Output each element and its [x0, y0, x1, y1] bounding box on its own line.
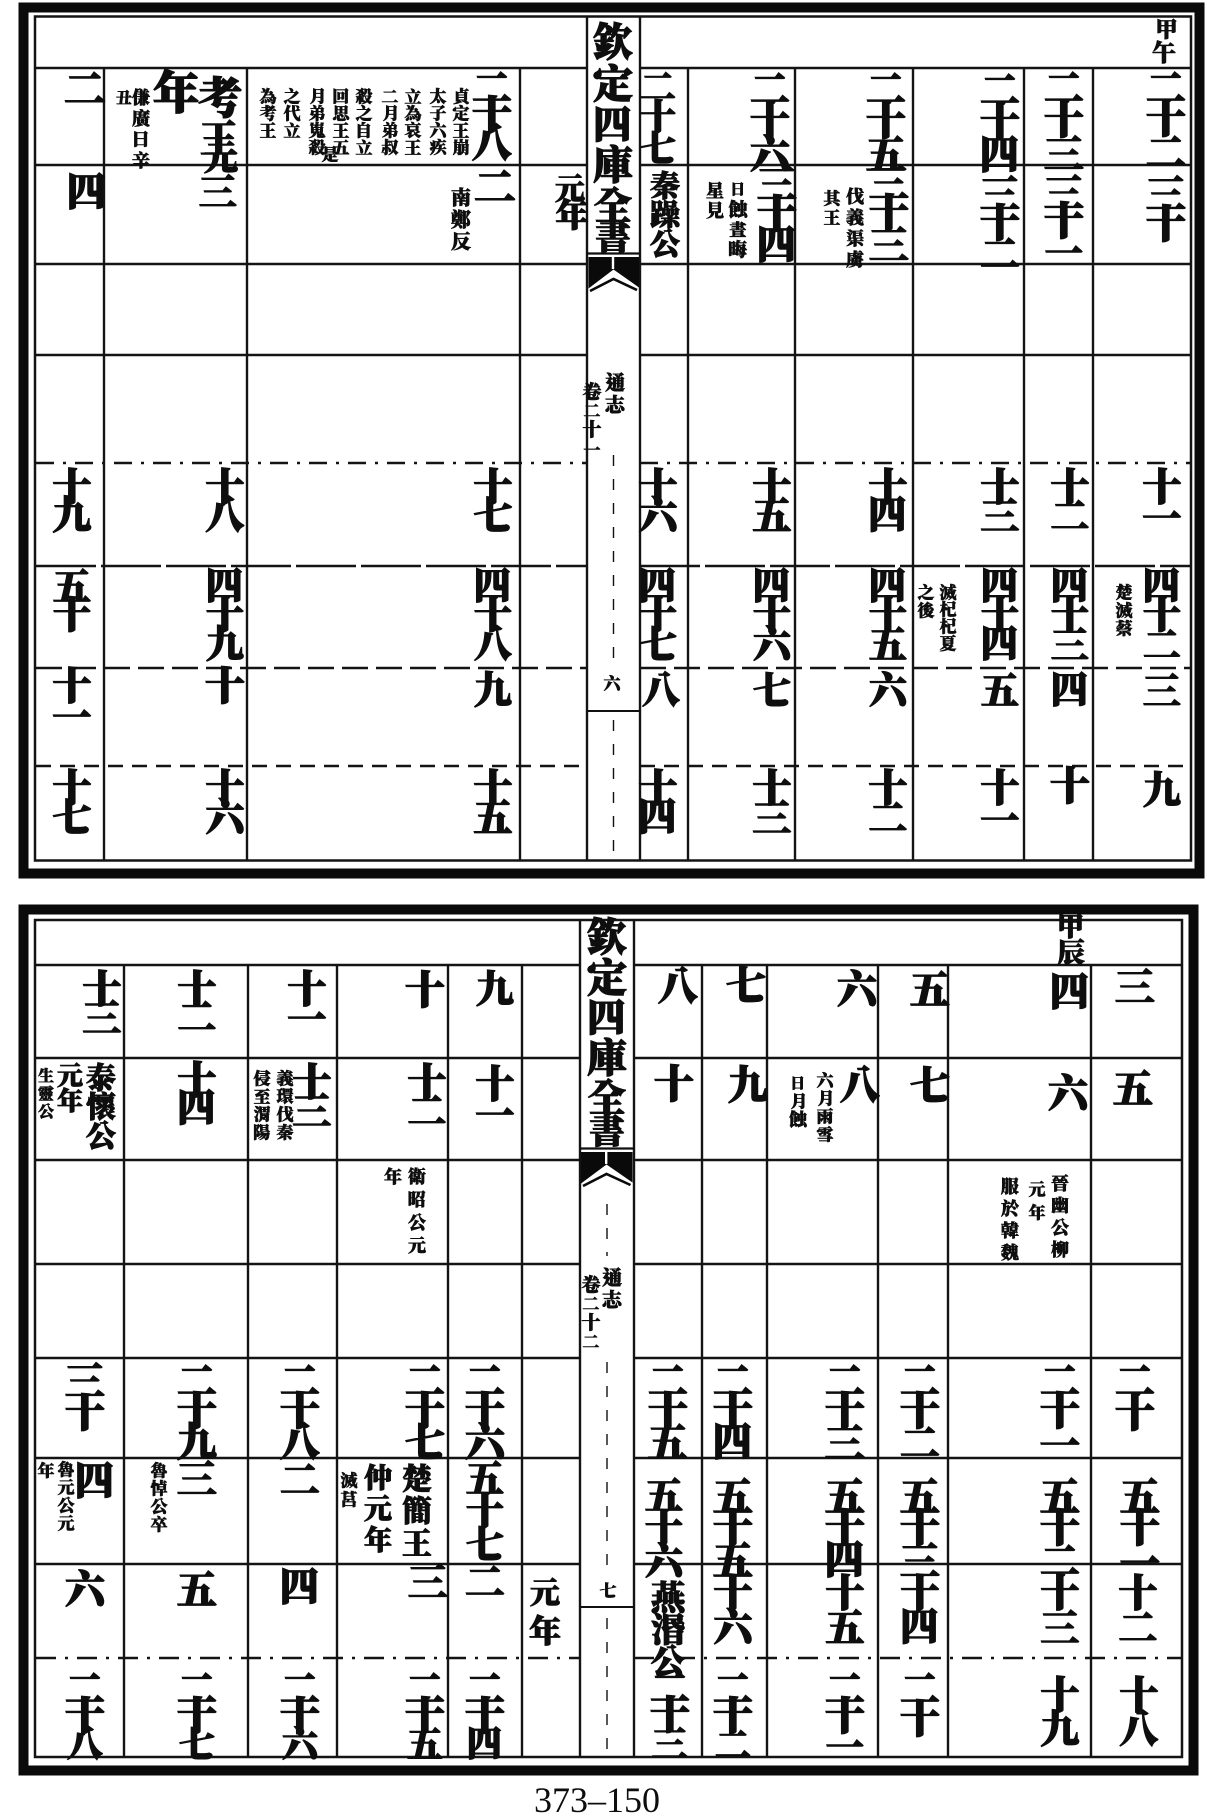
svg-text:373–150: 373–150: [534, 1780, 660, 1818]
